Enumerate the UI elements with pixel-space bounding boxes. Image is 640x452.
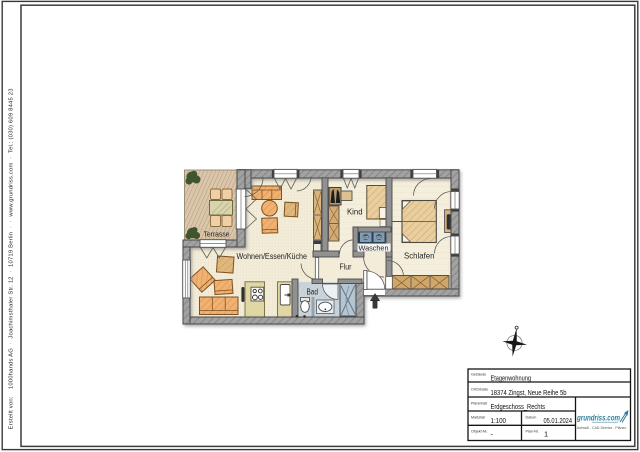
svg-text:Etagenwohnung: Etagenwohnung <box>491 374 532 383</box>
svg-text:Datum: Datum <box>526 415 537 419</box>
svg-text:Kind: Kind <box>347 208 363 217</box>
svg-text:Aufmaß - CAD-Service - Plänen: Aufmaß - CAD-Service - Plänen <box>577 426 627 430</box>
svg-text:Maßstab: Maßstab <box>471 415 485 419</box>
svg-text:60: 60 <box>363 235 369 240</box>
svg-text:Bad: Bad <box>307 288 319 297</box>
svg-text:1: 1 <box>544 429 548 438</box>
svg-text:Schlafen: Schlafen <box>404 252 435 261</box>
svg-text:Waschen: Waschen <box>359 243 389 252</box>
svg-text:05.01.2024: 05.01.2024 <box>544 416 573 425</box>
svg-text:1:100: 1:100 <box>491 416 507 425</box>
svg-text:Planinhalt: Planinhalt <box>471 402 487 406</box>
svg-text:Erstellt von: 1000hands AG: Erstellt von: 1000hands AG · Joachimstha… <box>9 88 15 430</box>
svg-text:Ort/Straße: Ort/Straße <box>471 387 488 391</box>
svg-text:60: 60 <box>376 235 382 240</box>
svg-text:Wohnen/Essen/Küche: Wohnen/Essen/Küche <box>237 252 308 261</box>
svg-text:Flur: Flur <box>340 263 352 272</box>
svg-text:18374 Zingst, Neue Reihe 5b: 18374 Zingst, Neue Reihe 5b <box>491 388 567 397</box>
svg-text:Erdgeschoss_Rechts: Erdgeschoss_Rechts <box>491 402 546 411</box>
svg-text:Gebäude: Gebäude <box>471 373 486 377</box>
svg-text:Terrasse: Terrasse <box>204 230 230 239</box>
svg-text:Plan-Nr.: Plan-Nr. <box>526 430 539 434</box>
svg-text:grundriss.com: grundriss.com <box>576 413 620 422</box>
svg-text:Objekt-Nr.: Objekt-Nr. <box>471 430 488 434</box>
